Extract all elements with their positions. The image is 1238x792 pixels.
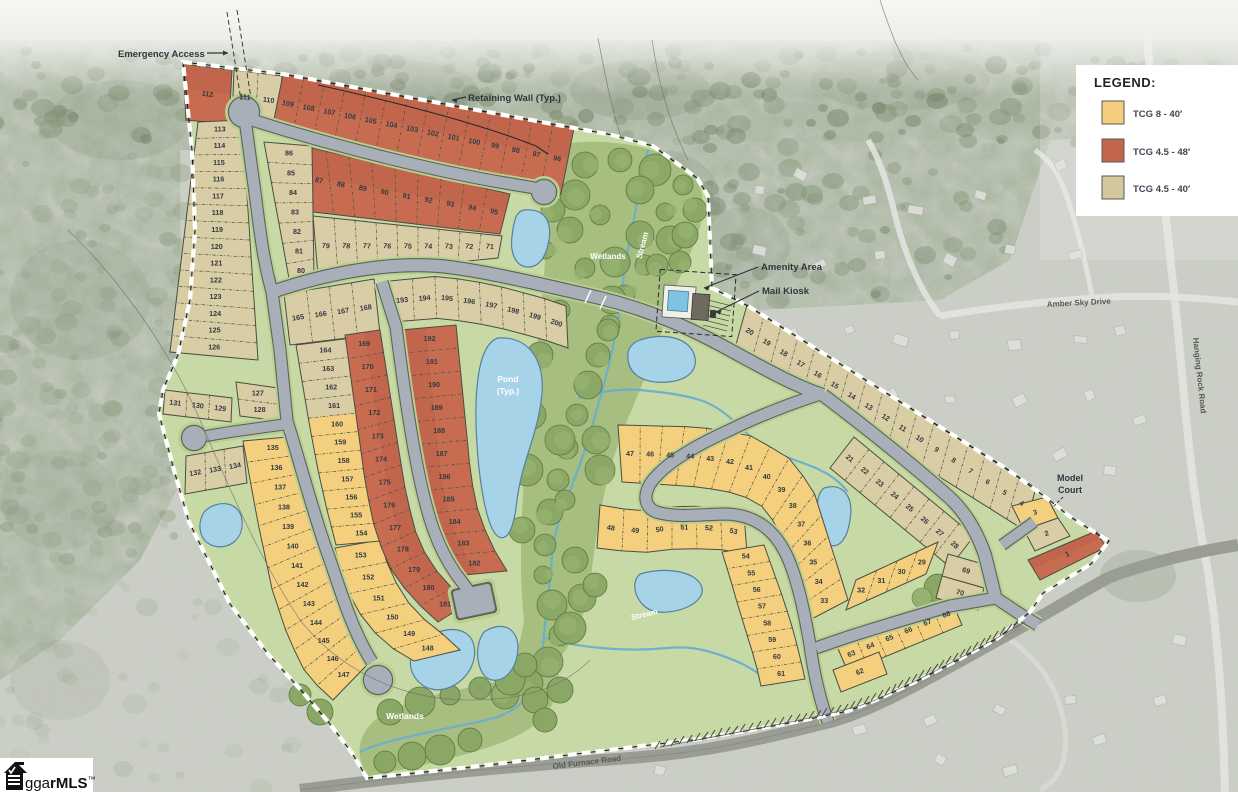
svg-text:79: 79 <box>321 241 330 251</box>
svg-text:193: 193 <box>396 295 409 305</box>
svg-text:181: 181 <box>439 599 451 608</box>
svg-text:139: 139 <box>282 522 294 531</box>
svg-text:151: 151 <box>373 593 385 602</box>
svg-text:137: 137 <box>274 483 286 492</box>
svg-text:171: 171 <box>365 385 377 394</box>
svg-text:34: 34 <box>815 577 823 586</box>
svg-text:33: 33 <box>820 596 828 605</box>
svg-text:136: 136 <box>271 463 283 472</box>
svg-text:Emergency Access: Emergency Access <box>118 49 205 60</box>
svg-text:192: 192 <box>424 334 436 343</box>
svg-text:73: 73 <box>444 241 453 251</box>
svg-text:84: 84 <box>289 188 297 197</box>
svg-text:40: 40 <box>763 472 771 481</box>
svg-text:173: 173 <box>372 431 384 440</box>
svg-text:39: 39 <box>778 485 786 494</box>
svg-text:140: 140 <box>287 541 299 550</box>
svg-text:150: 150 <box>386 612 398 621</box>
svg-text:56: 56 <box>753 585 761 594</box>
svg-text:148: 148 <box>422 643 434 652</box>
svg-text:158: 158 <box>338 456 350 465</box>
svg-text:120: 120 <box>211 242 223 251</box>
svg-text:74: 74 <box>424 241 433 251</box>
svg-text:114: 114 <box>214 141 226 150</box>
svg-text:176: 176 <box>383 500 395 509</box>
svg-text:156: 156 <box>345 493 357 502</box>
svg-text:124: 124 <box>209 309 221 318</box>
svg-text:121: 121 <box>210 259 222 268</box>
svg-text:125: 125 <box>209 326 221 335</box>
svg-text:81: 81 <box>295 247 303 256</box>
svg-text:116: 116 <box>213 175 225 184</box>
svg-text:147: 147 <box>338 670 350 679</box>
svg-text:80: 80 <box>297 266 305 275</box>
svg-text:Wetlands: Wetlands <box>386 711 424 721</box>
svg-text:45: 45 <box>666 451 674 460</box>
svg-text:54: 54 <box>742 552 750 561</box>
svg-text:152: 152 <box>362 573 374 582</box>
svg-text:196: 196 <box>463 296 476 307</box>
svg-text:31: 31 <box>877 576 885 585</box>
svg-text:49: 49 <box>631 525 640 535</box>
svg-text:143: 143 <box>303 599 315 608</box>
svg-text:168: 168 <box>359 302 372 313</box>
svg-text:TCG 4.5 - 48′: TCG 4.5 - 48′ <box>1133 147 1191 158</box>
svg-text:178: 178 <box>397 545 409 554</box>
svg-text:131: 131 <box>169 398 182 408</box>
svg-text:Court: Court <box>1058 485 1082 495</box>
svg-text:155: 155 <box>350 511 362 520</box>
svg-text:135: 135 <box>267 443 279 452</box>
svg-text:Wetlands: Wetlands <box>590 252 626 261</box>
svg-text:164: 164 <box>319 346 331 355</box>
svg-text:36: 36 <box>803 538 811 547</box>
svg-text:153: 153 <box>355 550 367 559</box>
svg-text:177: 177 <box>389 523 401 532</box>
svg-text:99: 99 <box>490 140 500 150</box>
svg-text:72: 72 <box>465 241 474 251</box>
svg-text:59: 59 <box>768 635 776 644</box>
svg-text:126: 126 <box>208 343 220 352</box>
svg-text:190: 190 <box>428 380 440 389</box>
svg-text:188: 188 <box>433 426 445 435</box>
svg-text:112: 112 <box>201 89 214 99</box>
svg-text:98: 98 <box>511 145 521 155</box>
svg-text:144: 144 <box>310 618 322 627</box>
svg-text:157: 157 <box>341 474 353 483</box>
svg-text:115: 115 <box>213 158 225 167</box>
svg-text:52: 52 <box>705 523 714 533</box>
svg-text:113: 113 <box>214 124 226 133</box>
svg-text:185: 185 <box>443 495 455 504</box>
svg-text:77: 77 <box>362 241 371 251</box>
svg-text:174: 174 <box>375 454 387 463</box>
svg-text:55: 55 <box>747 568 755 577</box>
svg-text:170: 170 <box>362 362 374 371</box>
svg-text:61: 61 <box>777 669 785 678</box>
svg-text:119: 119 <box>211 225 223 234</box>
svg-text:38: 38 <box>789 501 797 510</box>
svg-text:175: 175 <box>379 477 391 486</box>
svg-text:165: 165 <box>291 312 304 323</box>
svg-text:Mail Kiosk: Mail Kiosk <box>762 286 810 297</box>
svg-text:118: 118 <box>212 208 224 217</box>
svg-text:138: 138 <box>278 502 290 511</box>
svg-text:110: 110 <box>262 95 275 105</box>
svg-text:57: 57 <box>758 602 766 611</box>
svg-text:43: 43 <box>706 454 714 463</box>
svg-text:145: 145 <box>318 636 330 645</box>
svg-text:ggarMLS™: ggarMLS™ <box>25 775 96 792</box>
svg-text:128: 128 <box>254 405 266 414</box>
svg-text:191: 191 <box>426 357 438 366</box>
svg-text:96: 96 <box>552 153 562 163</box>
svg-text:78: 78 <box>342 241 351 251</box>
svg-text:75: 75 <box>403 241 412 251</box>
svg-text:189: 189 <box>431 403 443 412</box>
svg-text:167: 167 <box>336 305 349 316</box>
svg-text:58: 58 <box>763 618 771 627</box>
svg-text:42: 42 <box>726 457 734 466</box>
svg-text:154: 154 <box>355 529 367 538</box>
svg-text:41: 41 <box>745 463 753 472</box>
svg-text:37: 37 <box>797 519 805 528</box>
svg-text:47: 47 <box>626 449 634 458</box>
svg-text:172: 172 <box>368 408 380 417</box>
svg-text:146: 146 <box>327 654 339 663</box>
svg-text:194: 194 <box>418 293 431 303</box>
svg-text:123: 123 <box>210 292 222 301</box>
svg-text:TCG 8 - 40′: TCG 8 - 40′ <box>1133 109 1183 120</box>
svg-text:117: 117 <box>212 191 224 200</box>
svg-text:159: 159 <box>334 438 346 447</box>
svg-text:179: 179 <box>408 565 420 574</box>
svg-text:50: 50 <box>655 524 664 534</box>
svg-text:Retaining Wall (Typ.): Retaining Wall (Typ.) <box>468 93 561 104</box>
svg-text:Pond: Pond <box>497 374 518 384</box>
svg-text:184: 184 <box>449 517 461 526</box>
svg-text:141: 141 <box>291 561 303 570</box>
svg-text:183: 183 <box>457 538 469 547</box>
svg-text:48: 48 <box>606 523 615 533</box>
svg-text:162: 162 <box>325 383 337 392</box>
svg-text:127: 127 <box>252 388 264 397</box>
svg-text:163: 163 <box>322 364 334 373</box>
svg-text:(Typ.): (Typ.) <box>497 386 520 396</box>
svg-text:149: 149 <box>403 629 415 638</box>
svg-text:186: 186 <box>439 472 451 481</box>
svg-text:51: 51 <box>680 523 688 532</box>
svg-text:76: 76 <box>383 241 392 251</box>
svg-text:LEGEND:: LEGEND: <box>1094 75 1156 90</box>
svg-text:161: 161 <box>328 401 340 410</box>
svg-text:46: 46 <box>646 450 654 459</box>
svg-text:85: 85 <box>287 168 295 177</box>
svg-text:35: 35 <box>809 558 817 567</box>
svg-text:44: 44 <box>686 452 694 461</box>
svg-text:Model: Model <box>1057 473 1083 483</box>
svg-text:182: 182 <box>468 559 480 568</box>
svg-text:97: 97 <box>532 149 542 159</box>
svg-text:166: 166 <box>314 309 327 320</box>
svg-text:71: 71 <box>485 241 494 251</box>
svg-text:60: 60 <box>773 652 781 661</box>
svg-text:83: 83 <box>291 207 299 216</box>
svg-text:169: 169 <box>358 339 370 348</box>
svg-text:TCG 4.5 - 40′: TCG 4.5 - 40′ <box>1133 184 1191 195</box>
svg-text:122: 122 <box>210 275 222 284</box>
svg-text:129: 129 <box>214 403 227 413</box>
svg-text:111: 111 <box>239 92 251 102</box>
svg-text:195: 195 <box>441 293 454 303</box>
svg-text:160: 160 <box>331 419 343 428</box>
svg-text:Amenity Area: Amenity Area <box>761 262 823 273</box>
svg-text:142: 142 <box>297 580 309 589</box>
svg-text:86: 86 <box>285 149 293 158</box>
svg-text:187: 187 <box>436 449 448 458</box>
svg-text:29: 29 <box>918 558 926 567</box>
svg-text:180: 180 <box>422 583 434 592</box>
svg-text:32: 32 <box>857 585 865 594</box>
svg-text:30: 30 <box>898 567 906 576</box>
svg-text:82: 82 <box>293 227 301 236</box>
